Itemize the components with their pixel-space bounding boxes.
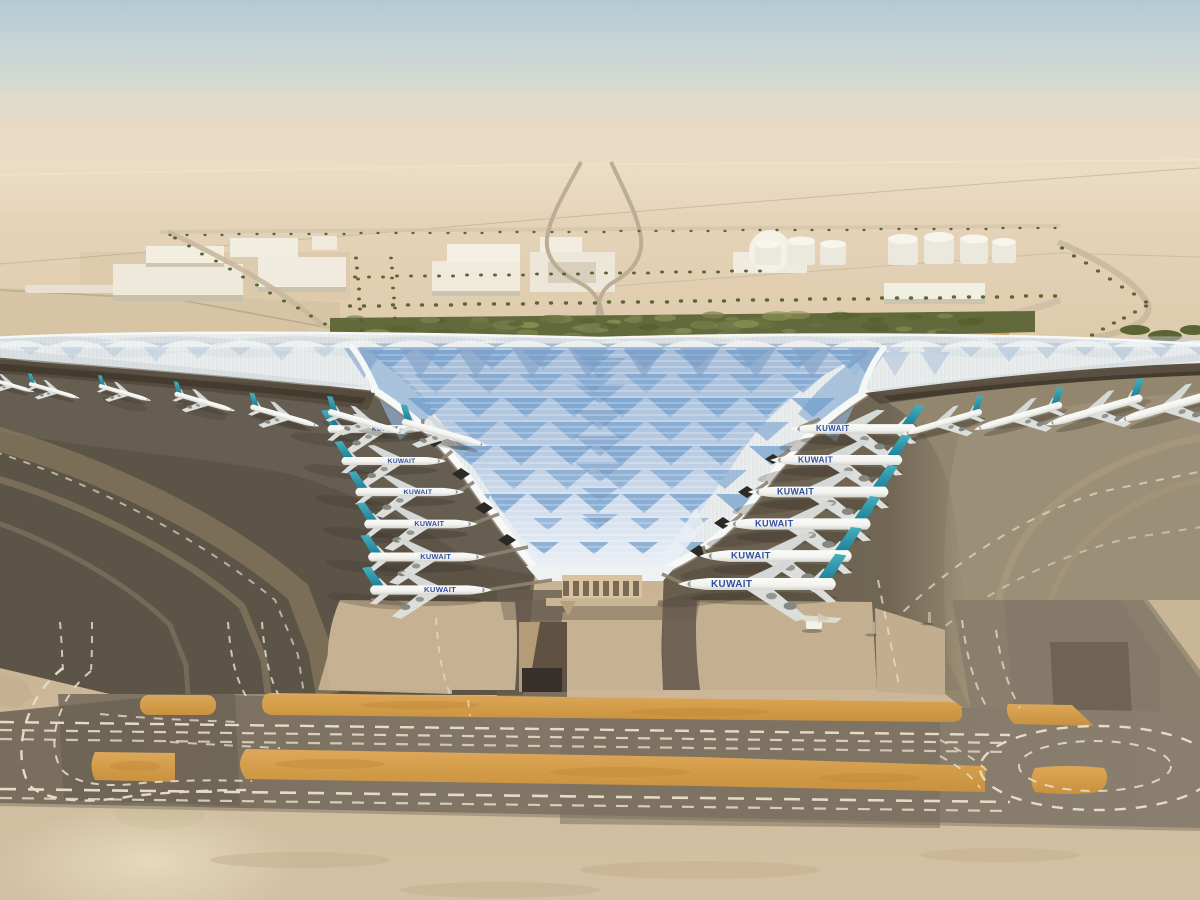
svg-text:KUWAIT: KUWAIT [731, 551, 771, 562]
svg-text:KUWAIT: KUWAIT [816, 424, 850, 433]
svg-text:KUWAIT: KUWAIT [424, 585, 456, 594]
svg-text:KUWAIT: KUWAIT [420, 552, 451, 561]
svg-text:KUWAIT: KUWAIT [798, 454, 833, 464]
svg-text:KUWAIT: KUWAIT [777, 487, 814, 497]
svg-text:KUWAIT: KUWAIT [711, 579, 752, 590]
svg-text:KUWAIT: KUWAIT [414, 520, 444, 528]
svg-text:KUWAIT: KUWAIT [404, 489, 433, 496]
svg-text:KUWAIT: KUWAIT [388, 458, 416, 465]
svg-text:KUWAIT: KUWAIT [755, 519, 794, 529]
